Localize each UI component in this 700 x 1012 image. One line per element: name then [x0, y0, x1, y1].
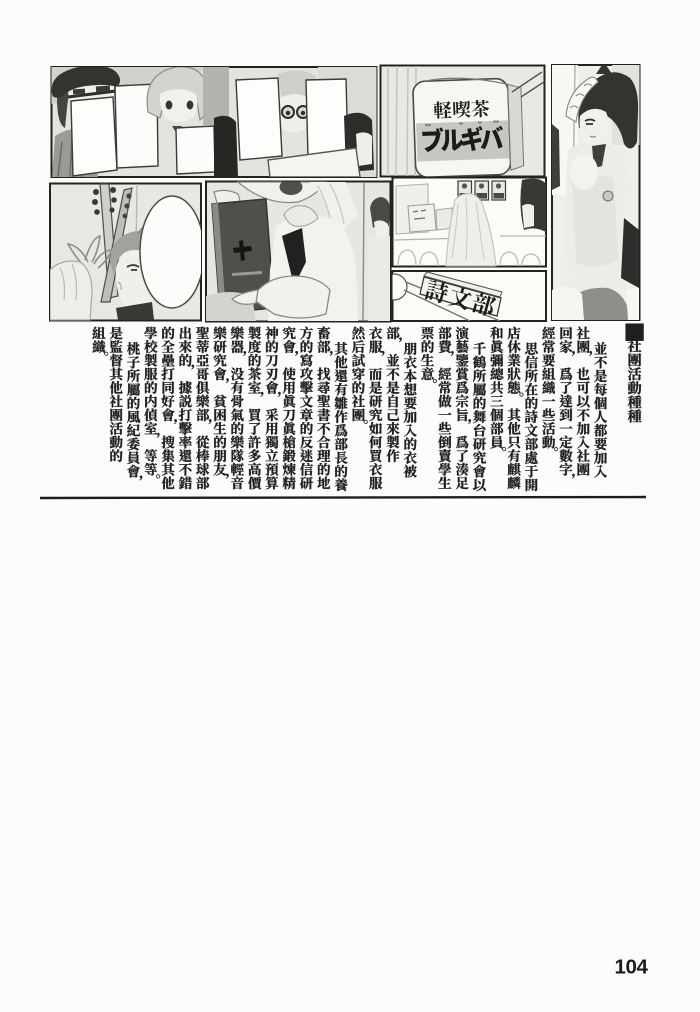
svg-text:104: 104: [615, 956, 649, 979]
